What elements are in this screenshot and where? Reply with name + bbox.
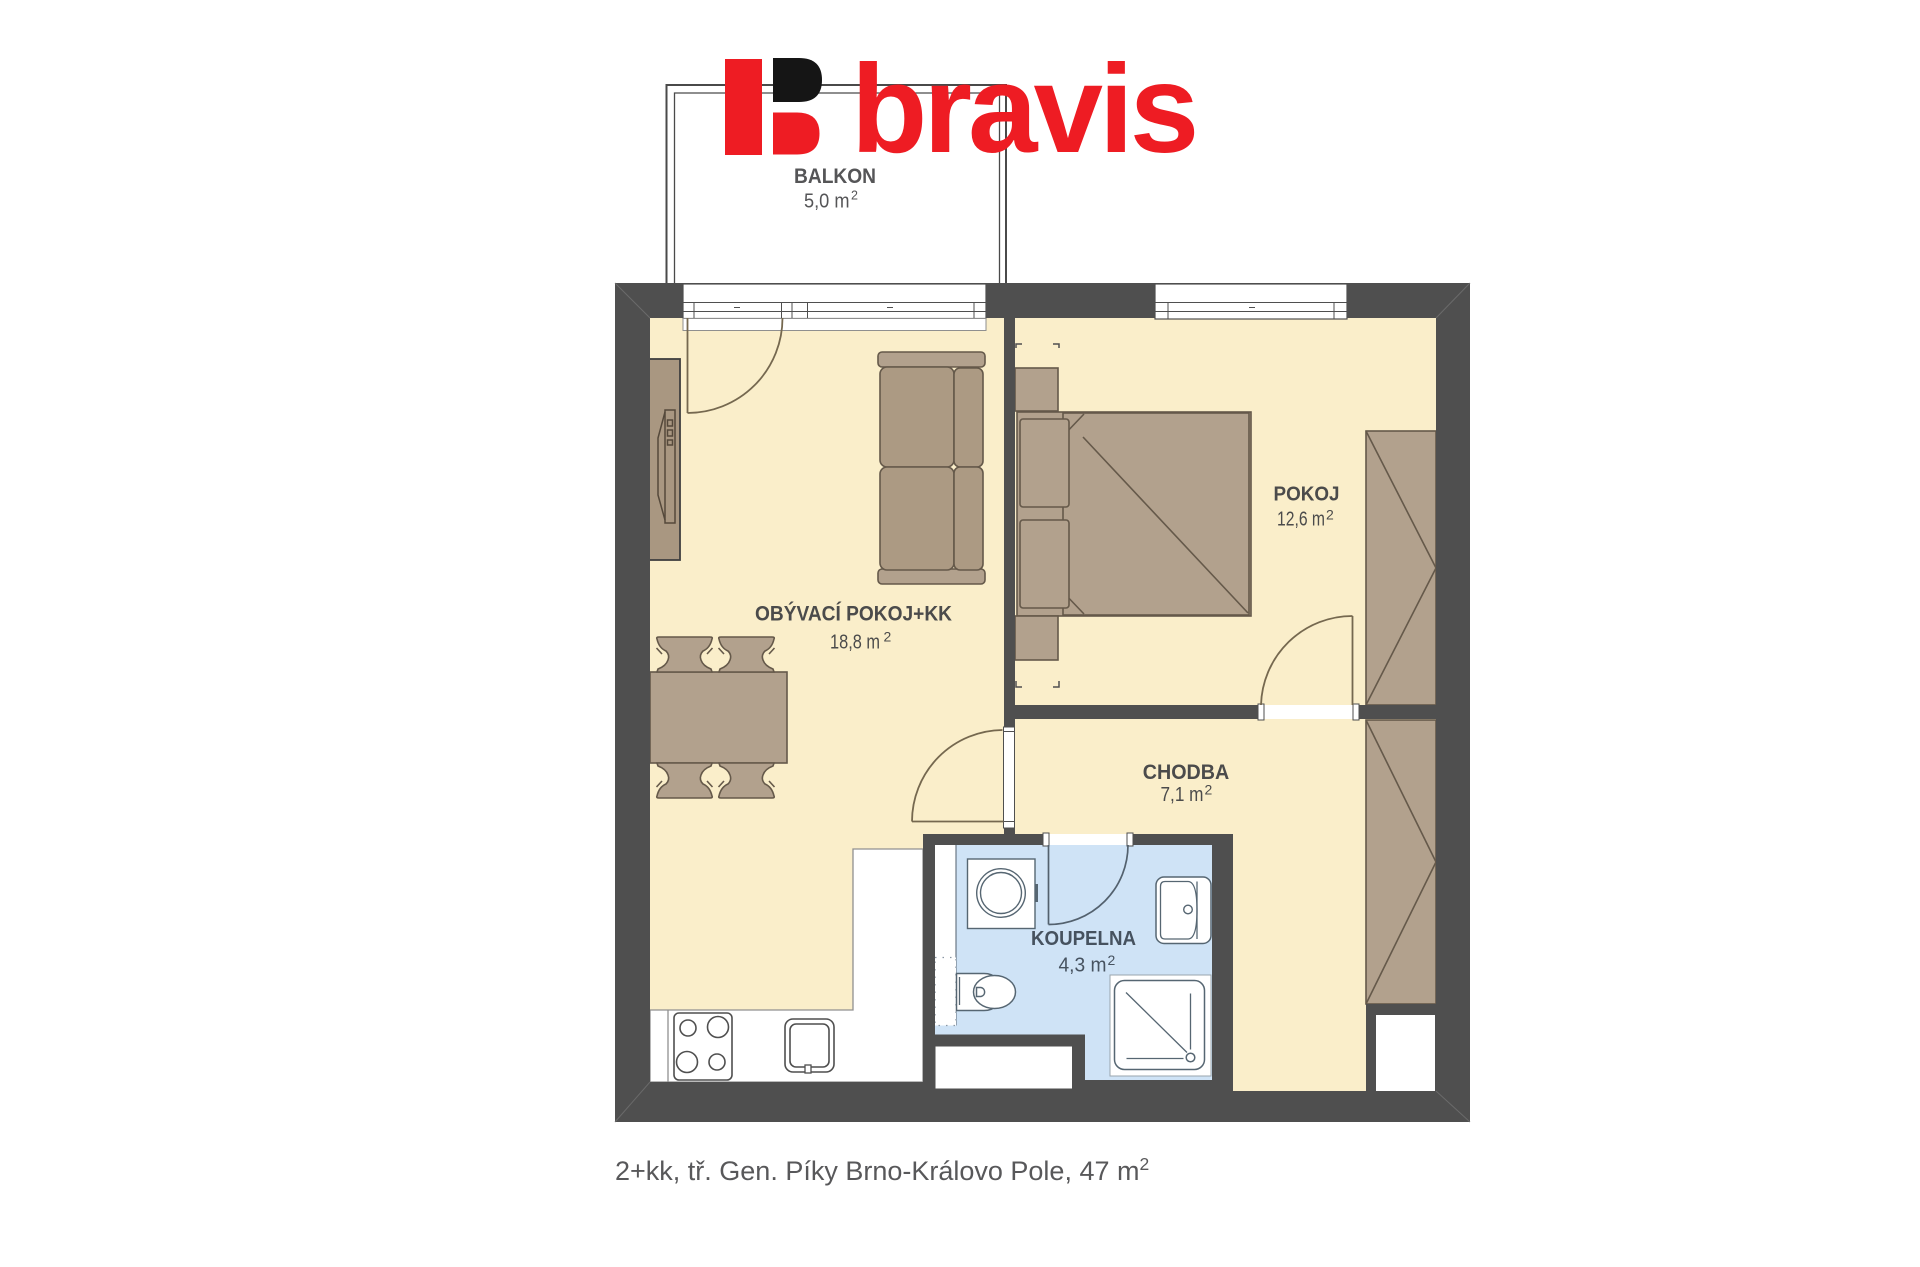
svg-text:KOUPELNA: KOUPELNA <box>1031 927 1136 950</box>
svg-text:2: 2 <box>1108 952 1116 968</box>
svg-text:bravis: bravis <box>851 40 1195 179</box>
svg-text:7,1 m: 7,1 m <box>1161 783 1204 806</box>
svg-text:5,0 m: 5,0 m <box>804 190 850 213</box>
svg-text:2+kk, tř. Gen. Píky Brno-Králo: 2+kk, tř. Gen. Píky Brno-Královo Pole, 4… <box>615 1154 1149 1186</box>
svg-text:OBÝVACÍ POKOJ+KK: OBÝVACÍ POKOJ+KK <box>755 602 952 626</box>
svg-text:2: 2 <box>884 629 892 645</box>
svg-text:2: 2 <box>851 189 858 203</box>
svg-text:2: 2 <box>1326 507 1334 523</box>
svg-text:12,6 m: 12,6 m <box>1277 507 1325 530</box>
svg-text:POKOJ: POKOJ <box>1274 483 1340 506</box>
svg-text:4,3 m: 4,3 m <box>1059 954 1107 977</box>
svg-text:18,8 m: 18,8 m <box>830 631 880 654</box>
svg-text:2: 2 <box>1205 782 1213 798</box>
svg-text:CHODBA: CHODBA <box>1143 761 1230 784</box>
